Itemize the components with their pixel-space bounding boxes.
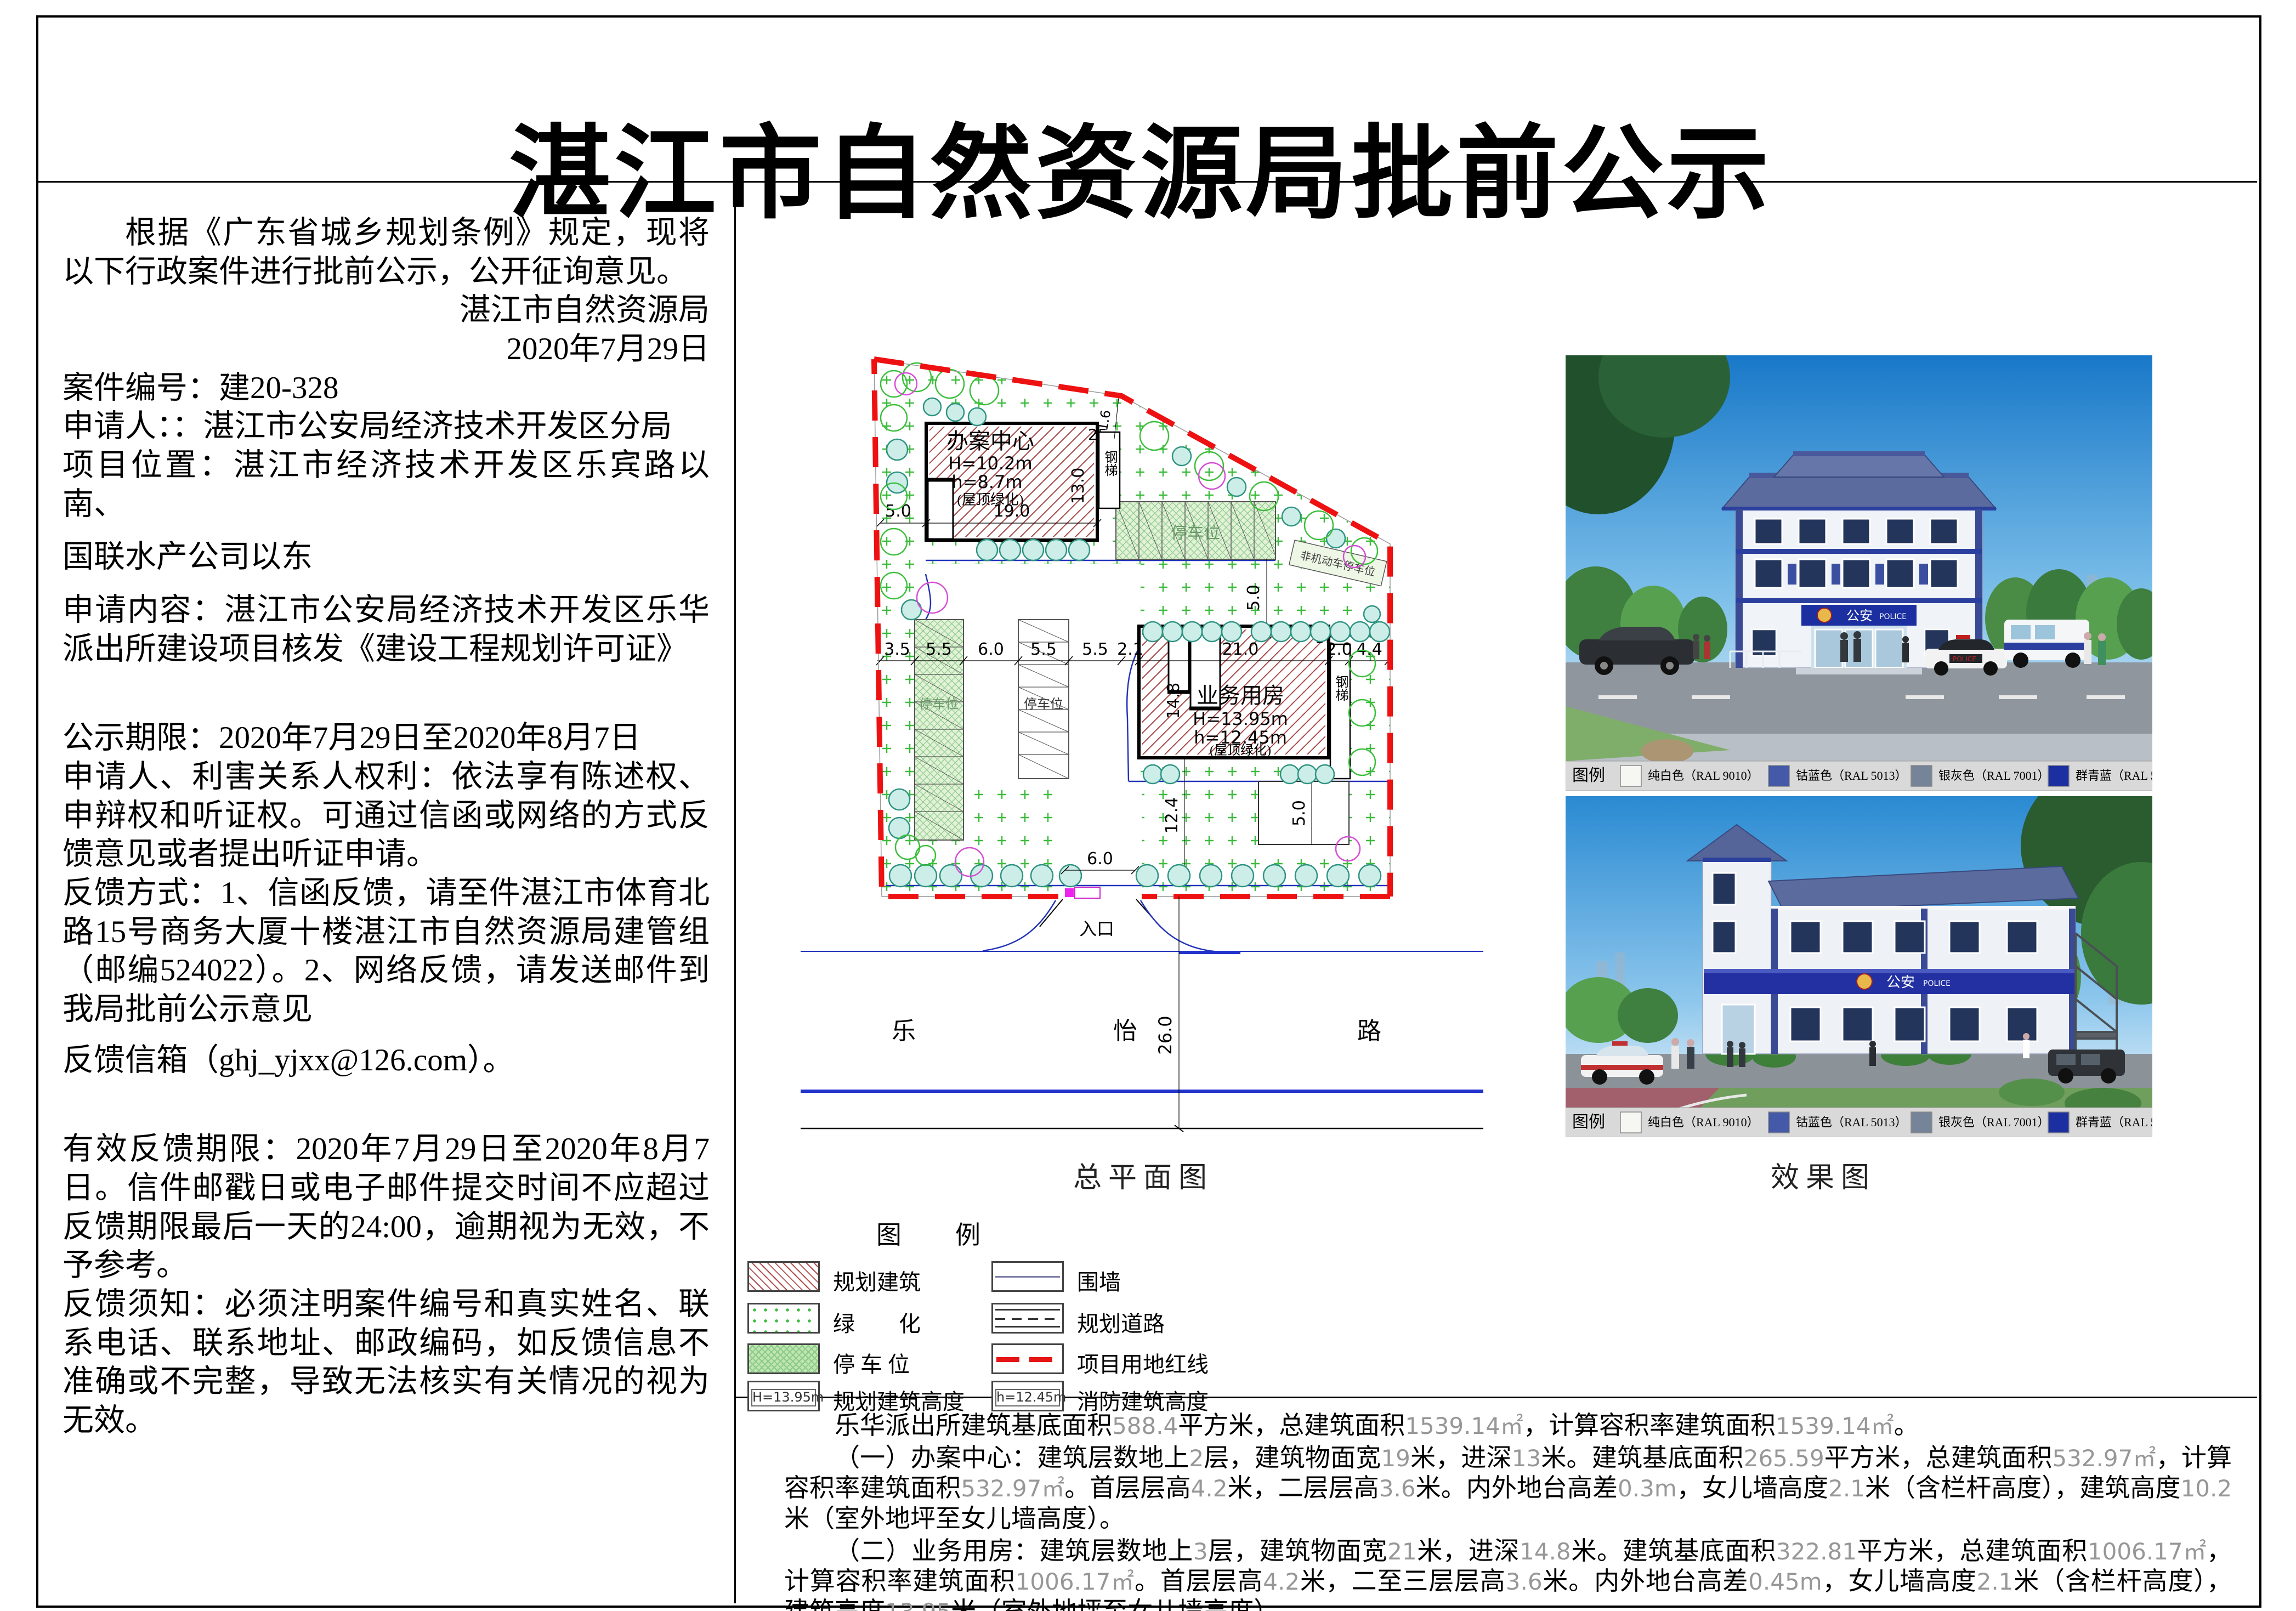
entrance-dim: 6.0 — [1087, 849, 1113, 869]
parking-label-mid: 停车位 — [1024, 697, 1063, 712]
swatch-white-label: 纯白色（RAL 9010） — [1648, 769, 1759, 782]
feedback-method: 反馈方式：1、信函反馈，请至件湛江市体育北路15号商务大厦十楼湛江市自然资源局建… — [44, 874, 725, 1029]
building1-dim-depth: 13.0 — [1069, 468, 1088, 504]
road-name-1: 乐 — [892, 1018, 916, 1045]
swatch-silver-label: 银灰色（RAL 7001） — [1938, 769, 2050, 782]
red-line-swatch — [991, 1343, 1064, 1374]
title-divider — [36, 181, 2257, 183]
parking-label-left: 停车位 — [919, 697, 959, 712]
road: 乐 怡 路 26.0 — [801, 897, 1483, 1132]
sign-cn: 公安 — [1886, 974, 1915, 990]
stair1-label: 钢梯 — [1102, 450, 1118, 477]
notice-page: 湛江市自然资源局批前公示 根据《广东省城乡规划条例》规定，现将以下行政案件进行批… — [0, 0, 2296, 1611]
building2-dim-depth: 14.8 — [1164, 683, 1183, 719]
summary-total: 乐华派出所建筑基底面积588.4平方米，总建筑面积1539.14㎡，计算容积率建… — [784, 1410, 2232, 1440]
render-legend-title: 图例 — [1572, 1113, 1605, 1131]
siteplan-caption: 总平面图 — [1036, 1154, 1250, 1195]
sign-en: POLICE — [1923, 979, 1951, 988]
rock — [1641, 739, 1693, 763]
dim-12-4: 12.4 — [1163, 797, 1182, 834]
swatch-silver — [1911, 765, 1932, 786]
building2-height: H=13.95m — [1193, 708, 1288, 729]
planned-road-swatch — [991, 1303, 1064, 1334]
police-badge — [1857, 974, 1872, 989]
greening-swatch — [747, 1303, 820, 1334]
building1-dim-left: 5.0 — [885, 502, 911, 521]
site-legend-title: 图 例 — [876, 1215, 995, 1251]
dim-5-5b: 5.5 — [1030, 640, 1057, 659]
parking-area-ne: 停车位 — [1116, 502, 1275, 559]
wall-swatch — [991, 1261, 1064, 1292]
swatch-silver-label: 银灰色（RAL 7001） — [1938, 1115, 2050, 1129]
swatch-ultramarine — [2048, 765, 2069, 786]
swatch-cobalt-label: 钴蓝色（RAL 5013） — [1796, 769, 1907, 782]
panel-divider — [734, 181, 736, 1603]
swatch-white — [1620, 765, 1641, 786]
police-badge — [1817, 608, 1832, 622]
application-content: 申请内容：湛江市公安局经济技术开发区乐华派出所建设项目核发《建设工程规划许可证》 — [44, 591, 725, 668]
rendering-top: 公安 POLICE POLICE — [1566, 355, 2152, 791]
rights-statement: 申请人、利害关系人权利：依法享有陈述权、申辩权和听证权。可通过信函或网络的方式反… — [44, 758, 725, 874]
rendering-caption: 效果图 — [1716, 1154, 1930, 1195]
render-legend-title: 图例 — [1572, 767, 1605, 785]
project-summary-text: 乐华派出所建筑基底面积588.4平方米，总建筑面积1539.14㎡，计算容积率建… — [784, 1410, 2232, 1611]
swatch-white-label: 纯白色（RAL 9010） — [1648, 1115, 1759, 1129]
notice-agency: 湛江市自然资源局 — [44, 291, 775, 330]
building1-fire-height: h=8.7m — [951, 472, 1022, 492]
valid-feedback-period: 有效反馈期限：2020年7月29日至2020年8月7日。信件邮戳日或电子邮件提交… — [44, 1130, 725, 1285]
road-name-3: 路 — [1357, 1018, 1381, 1045]
steel-stair-2: 钢梯 — [1330, 644, 1350, 779]
applicant: 申请人：：湛江市公安局经济技术开发区分局 — [44, 407, 725, 446]
dim-3-5: 3.5 — [884, 640, 910, 659]
site-plan: 停车位 非机动车停车位 停车位 停车位 办案中心 H=10.2m h= — [795, 340, 1503, 1195]
dim-5-0b: 5.0 — [1290, 800, 1309, 826]
color-legend-strip-2: 图例 纯白色（RAL 9010） 钴蓝色（RAL 5013） 银灰色（RAL 7… — [1566, 1108, 2152, 1137]
dim-5-5a: 5.5 — [926, 640, 952, 659]
case-number: 案件编号：建20-328 — [44, 369, 725, 408]
notice-date: 2020年7月29日 — [44, 330, 806, 369]
svg-text:POLICE: POLICE — [1953, 655, 1976, 663]
feedback-notes: 反馈须知：必须注明案件编号和真实姓名、联系电话、联系地址、邮政编码，如反馈信息不… — [44, 1285, 725, 1440]
summary-business-building: （二）业务用房：建筑层数地上3层，建筑物面宽21米，进深14.8米。建筑基底面积… — [784, 1536, 2232, 1611]
dim-2-0: 2.0 — [1326, 640, 1352, 659]
fire-height-swatch: h=12.45m — [991, 1381, 1064, 1411]
dim-5-5c: 5.5 — [1082, 640, 1108, 659]
project-location: 项目位置：湛江市经济技术开发区乐宾路以南、 — [44, 446, 725, 524]
building2-roof-note: (屋顶绿化) — [1210, 743, 1271, 758]
stair2-label: 钢梯 — [1333, 675, 1348, 701]
road-name-2: 怡 — [1113, 1018, 1137, 1045]
dim-4-4: 4.4 — [1356, 640, 1382, 659]
dim-5-0tr: 5.0 — [1244, 585, 1263, 611]
strip-margin — [1566, 1137, 2152, 1151]
notice-text-panel: 根据《广东省城乡规划条例》规定，现将以下行政案件进行批前公示，公开征询意见。 湛… — [44, 214, 710, 1440]
color-legend-strip-1: 图例 纯白色（RAL 9010） 钴蓝色（RAL 5013） 银灰色（RAL 7… — [1566, 761, 2152, 791]
swatch-ultramarine — [2048, 1112, 2069, 1133]
notice-paragraph: 根据《广东省城乡规划条例》规定，现将以下行政案件进行批前公示，公开征询意见。 — [44, 214, 725, 291]
building1-dim-width: 19.0 — [994, 502, 1030, 521]
swatch-white — [1620, 1112, 1641, 1133]
dim-2-1: 2.1 — [1117, 640, 1143, 659]
building1-height: H=10.2m — [948, 453, 1032, 474]
planned-building-swatch — [747, 1261, 820, 1292]
rendering-bottom: 公安 POLICE — [1566, 796, 2152, 1151]
steel-stair-1: 钢梯 — [1099, 432, 1120, 508]
entrance-label: 入口 — [1079, 919, 1114, 939]
road-width-dim: 26.0 — [1155, 1016, 1176, 1054]
swatch-cobalt — [1768, 1112, 1789, 1133]
building-height-swatch: H=13.95m — [747, 1381, 820, 1411]
feedback-email: 反馈信箱（ghj_yjxx@126.com）。 — [44, 1041, 725, 1080]
parking-label-ne: 停车位 — [1171, 524, 1220, 542]
building1-name: 办案中心 — [946, 429, 1034, 453]
swatch-ultramarine-label: 群青蓝（RAL 5002） — [2076, 1115, 2152, 1129]
swatch-cobalt-label: 钴蓝色（RAL 5013） — [1796, 1115, 1907, 1129]
swatch-silver — [1911, 1112, 1932, 1133]
swatch-cobalt — [1768, 765, 1789, 786]
sign-cn: 公安 — [1846, 609, 1873, 623]
dim-21-0: 21.0 — [1222, 640, 1259, 659]
project-location-2: 国联水产公司以东 — [44, 538, 725, 577]
dim-6-0: 6.0 — [978, 640, 1004, 659]
publicity-period: 公示期限：2020年7月29日至2020年8月7日 — [44, 719, 725, 758]
summary-case-center: （一）办案中心：建筑层数地上2层，建筑物面宽19米，进深13米。建筑基底面积26… — [784, 1443, 2232, 1534]
building2-name: 业务用房 — [1197, 683, 1284, 708]
sign-en: POLICE — [1879, 612, 1907, 621]
swatch-ultramarine-label: 群青蓝（RAL 5002） — [2076, 769, 2152, 782]
parking-swatch — [747, 1343, 820, 1374]
